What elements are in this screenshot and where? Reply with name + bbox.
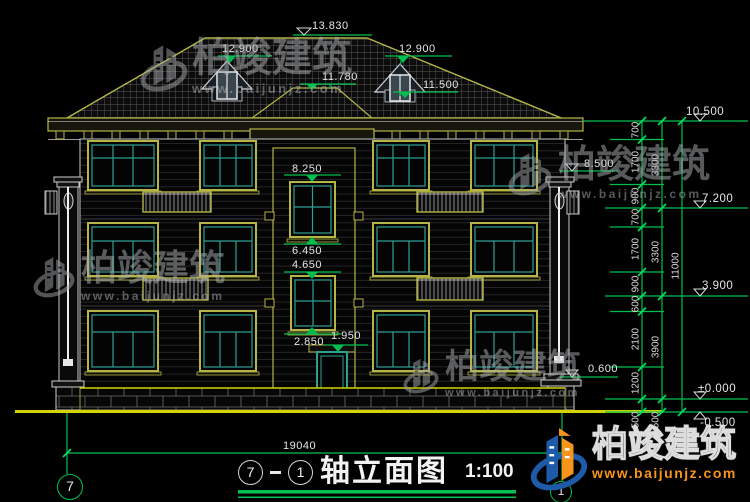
watermark-url: www.baijunjz.com <box>558 188 710 200</box>
watermark-brand: 柏竣建筑 <box>558 146 710 184</box>
elevation-label-0600: 0.600 <box>588 363 618 375</box>
chain-segment: 1200 <box>631 372 642 394</box>
elevation-label-2850: 2.850 <box>294 336 324 348</box>
elevation-label-3900: 3.900 <box>702 280 733 292</box>
watermark-url: www.baijunjz.com <box>81 290 225 302</box>
window <box>197 141 259 194</box>
chain-segment: 600 <box>631 296 642 313</box>
stair-window-lower <box>288 276 338 335</box>
watermark: 柏竣建筑 www.baijunjz.com <box>508 146 710 200</box>
watermark-logo-icon <box>403 350 439 400</box>
window <box>370 141 432 194</box>
title-underline <box>238 490 516 498</box>
window <box>85 311 161 375</box>
ground-line <box>15 410 663 413</box>
watermark-logo-icon <box>140 38 188 96</box>
stair-window-upper <box>287 182 338 242</box>
window <box>85 141 161 194</box>
brand-logo-icon <box>530 426 588 496</box>
elevation-label-6450: 6.450 <box>292 245 322 257</box>
watermark-brand: 柏竣建筑 <box>445 350 581 384</box>
elevation-label-8250: 8.250 <box>292 163 322 175</box>
cad-elevation-canvas: 13.830 12.900 12.900 11.780 11.500 8.250… <box>0 0 750 502</box>
chain-segment: 900 <box>631 276 642 293</box>
window <box>370 223 432 280</box>
window <box>197 311 259 375</box>
chain-segment: 700 <box>631 122 642 139</box>
brand-url: www.baijunjz.com <box>592 466 737 480</box>
elevation-label-4650: 4.650 <box>292 259 322 271</box>
chain-subtotal: 3300 <box>651 241 662 263</box>
elevation-label-ridge: 13.830 <box>312 20 349 32</box>
elevation-label-dormer-sill: 11.500 <box>423 79 459 91</box>
brand-logo: 柏竣建筑 www.baijunjz.com <box>530 426 737 480</box>
axis-bubble-7: 7 <box>57 474 83 500</box>
title-text: 轴立面图 <box>320 457 448 487</box>
chain-total: 11000 <box>671 252 682 279</box>
elevation-label-dormer-right: 12.900 <box>399 43 436 55</box>
elevation-label-0000: ±0.000 <box>698 383 736 395</box>
title-scale: 1:100 <box>465 461 514 483</box>
brand-name: 柏竣建筑 <box>592 426 737 462</box>
watermark: 柏竣建筑 www.baijunjz.com <box>403 350 581 399</box>
title-dash <box>270 471 281 474</box>
watermark-url: www.baijunjz.com <box>445 388 581 399</box>
elevation-label-10500: 10.500 <box>686 106 724 118</box>
watermark-logo-icon <box>508 146 552 200</box>
watermark: 柏竣建筑 www.baijunjz.com <box>33 250 225 302</box>
watermark-brand: 柏竣建筑 <box>192 38 352 78</box>
watermark-url: www.baijunjz.com <box>192 82 352 95</box>
drawing-title: 7 1 轴立面图 1:100 <box>238 457 514 487</box>
watermark: 柏竣建筑 www.baijunjz.com <box>140 38 352 95</box>
watermark-brand: 柏竣建筑 <box>81 250 225 286</box>
overall-width-dimension: 19040 <box>283 440 316 452</box>
title-axis-bubble-7: 7 <box>238 460 263 485</box>
chain-subtotal: 3900 <box>651 336 662 358</box>
title-axis-bubble-1: 1 <box>288 460 313 485</box>
chain-segment: 2100 <box>631 328 642 350</box>
watermark-logo-icon <box>33 250 75 302</box>
chain-segment: 700 <box>631 209 642 226</box>
window <box>468 223 540 280</box>
chain-segment: 1700 <box>631 238 642 260</box>
elevation-label-1950: 1.950 <box>331 330 361 342</box>
